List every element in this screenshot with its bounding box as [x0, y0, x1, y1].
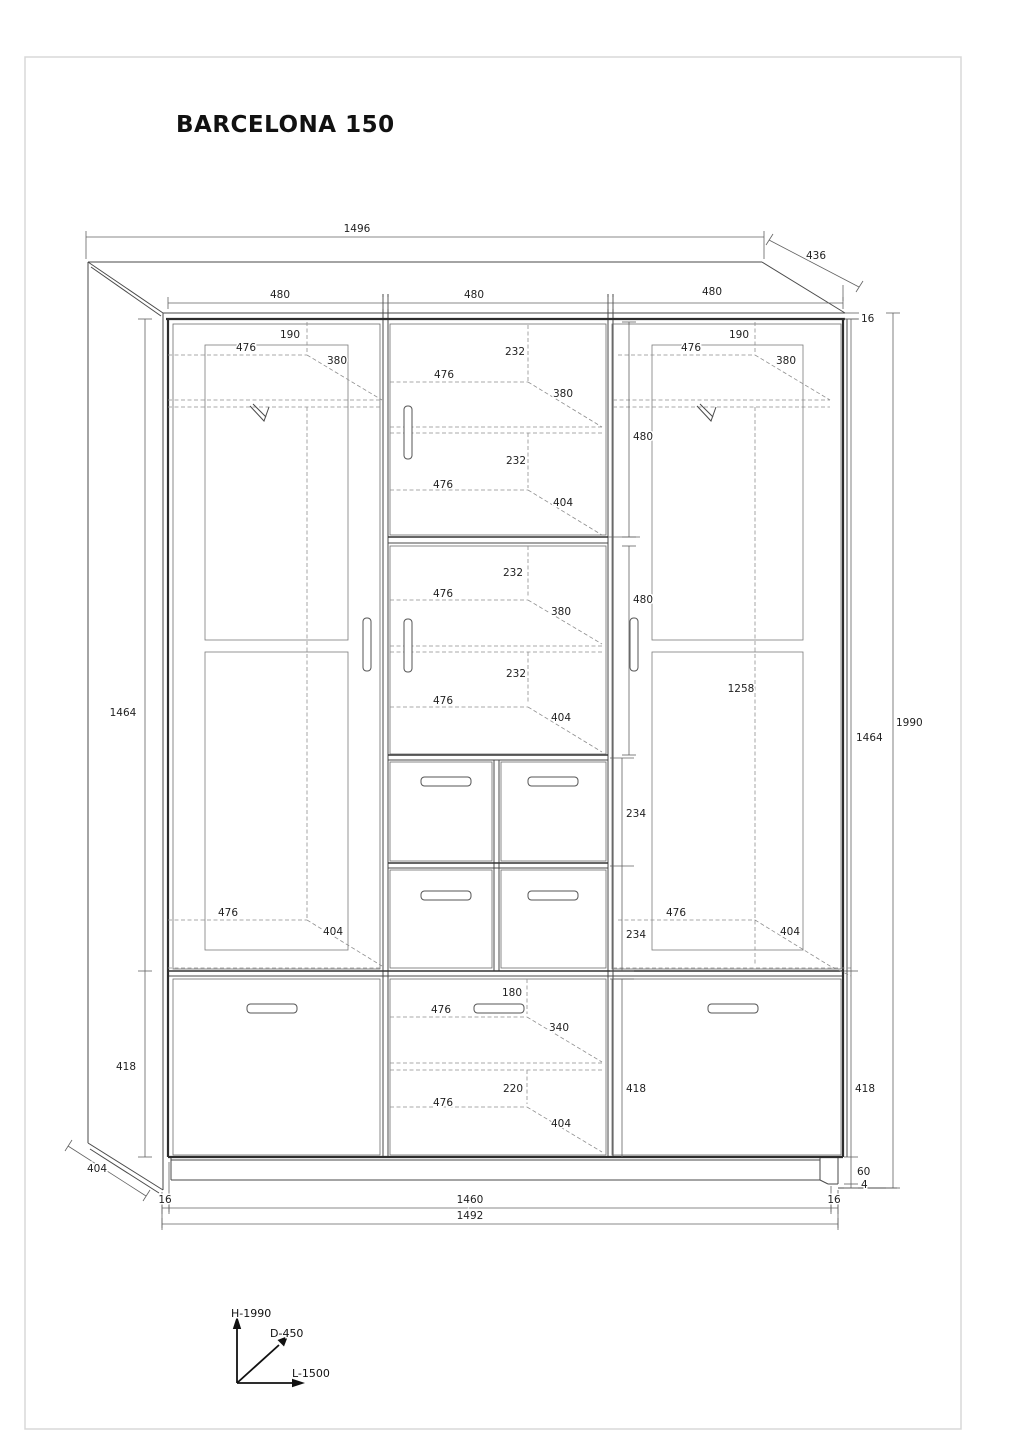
dim-mid-s1b-depth: 404: [553, 497, 573, 509]
axis-depth-label: D-450: [270, 1327, 303, 1340]
dim-mid-bottom-height: 418: [626, 1083, 646, 1095]
dim-bottom-left-thickness: 16: [158, 1194, 172, 1206]
dim-mid-s1-width: 476: [434, 369, 454, 381]
technical-drawing: BARCELONA 150: [0, 0, 1024, 1449]
drawing-page: BARCELONA 150: [0, 0, 1024, 1449]
dim-left-door-width: 480: [270, 289, 290, 301]
dim-right-door-height: 1464: [856, 732, 883, 744]
dim-bottom-right-thickness: 16: [827, 1194, 841, 1206]
dim-mid-bottom-offset: 180: [502, 987, 522, 999]
cabinet-structure: [88, 262, 897, 1193]
dim-rd-shelf-width: 476: [681, 342, 701, 354]
dim-overall-width: 1496: [344, 223, 371, 235]
dim-rd-bottom-width: 476: [666, 907, 686, 919]
dim-total-height: 1990: [896, 717, 923, 729]
dim-rd-top-offset: 190: [729, 329, 749, 341]
rod-bracket-icon: [697, 406, 716, 421]
drawer-row2-left: [390, 870, 492, 968]
dim-ld-shelf-width: 476: [236, 342, 256, 354]
bottom-left-drawer-handle: [247, 1004, 297, 1013]
dim-glide-height: 4: [861, 1179, 868, 1191]
left-door: [173, 324, 380, 969]
door-outlines: [173, 324, 841, 1155]
dim-middle-door-width: 480: [464, 289, 484, 301]
axis-height-label: H-1990: [231, 1307, 271, 1320]
dim-mid-s2-offset: 232: [503, 567, 523, 579]
rod-bracket-icon: [250, 406, 269, 421]
dim-mid-s2b-depth: 404: [551, 712, 571, 724]
dim-rd-upper-section: 480: [633, 431, 653, 443]
middle-door-lower: [390, 546, 606, 754]
dimension-labels: 1496 436 480 480 480 16 190 476 380 476 …: [87, 223, 923, 1222]
drawer-handle: [528, 891, 578, 900]
handles: [247, 406, 758, 1013]
drawer-handle: [421, 891, 471, 900]
dimension-lines: [65, 231, 900, 1230]
dim-mid-s2b-offset: 232: [506, 668, 526, 680]
dim-right-drawer-height: 418: [855, 1083, 875, 1095]
dim-left-depth: 404: [87, 1163, 107, 1175]
dim-rd-shelf-depth: 380: [776, 355, 796, 367]
dim-mid-bottom2-width: 476: [433, 1097, 453, 1109]
dim-rd-interior-height: 1258: [728, 683, 755, 695]
dim-mid-s2-width: 476: [433, 588, 453, 600]
right-door-handle: [630, 618, 638, 671]
dim-plinth-height: 60: [857, 1166, 870, 1178]
page-border: [25, 57, 961, 1429]
dim-mid-s1-depth: 380: [553, 388, 573, 400]
dim-bottom-outer-width: 1492: [457, 1210, 484, 1222]
bottom-right-drawer-handle: [708, 1004, 758, 1013]
dim-top-depth: 436: [806, 250, 826, 262]
drawer-handle: [528, 777, 578, 786]
dim-bottom-inner-width: 1460: [457, 1194, 484, 1206]
left-door-handle: [363, 618, 371, 671]
right-arrow-icon: [292, 1379, 305, 1387]
hidden-dashed-lines: [168, 322, 851, 1152]
page-title: BARCELONA 150: [176, 112, 395, 138]
dim-drawer-lower-height: 234: [626, 929, 646, 941]
dim-ld-shelf-depth: 380: [327, 355, 347, 367]
axis-legend: H-1990 D-450 L-1500: [231, 1307, 330, 1387]
dim-mid-s2-depth: 380: [551, 606, 571, 618]
dim-left-drawer-height: 418: [116, 1061, 136, 1073]
dim-mid-s1b-width: 476: [433, 479, 453, 491]
bottom-middle-door-handle: [474, 1004, 524, 1013]
dim-mid-bottom-width: 476: [431, 1004, 451, 1016]
dim-ld-bottom-depth: 404: [323, 926, 343, 938]
dim-mid-s1b-offset: 232: [506, 455, 526, 467]
axis-length-label: L-1500: [292, 1367, 330, 1380]
hanging-rod-brackets: [250, 404, 716, 421]
dim-ld-bottom-width: 476: [218, 907, 238, 919]
dim-mid-s1-offset: 232: [505, 346, 525, 358]
dim-drawer-upper-height: 234: [626, 808, 646, 820]
drawer-handle: [421, 777, 471, 786]
dim-rd-lower-section: 480: [633, 594, 653, 606]
right-door: [612, 324, 841, 969]
dim-left-door-height: 1464: [110, 707, 137, 719]
dim-ld-top-offset: 190: [280, 329, 300, 341]
dim-mid-s2b-width: 476: [433, 695, 453, 707]
cabinet-outline: [166, 319, 845, 1157]
middle-door-upper: [390, 324, 606, 535]
dim-mid-bottom-depth: 340: [549, 1022, 569, 1034]
middle-upper-door-handle: [404, 406, 412, 459]
dim-mid-bottom2-offset: 220: [503, 1083, 523, 1095]
dim-rd-bottom-depth: 404: [780, 926, 800, 938]
dim-top-panel-thickness: 16: [861, 313, 875, 325]
middle-lower-door-handle: [404, 619, 412, 672]
door-inset-panels: [205, 345, 803, 950]
dim-right-door-width: 480: [702, 286, 722, 298]
dim-mid-bottom2-depth: 404: [551, 1118, 571, 1130]
drawer-row2-right: [501, 870, 606, 968]
